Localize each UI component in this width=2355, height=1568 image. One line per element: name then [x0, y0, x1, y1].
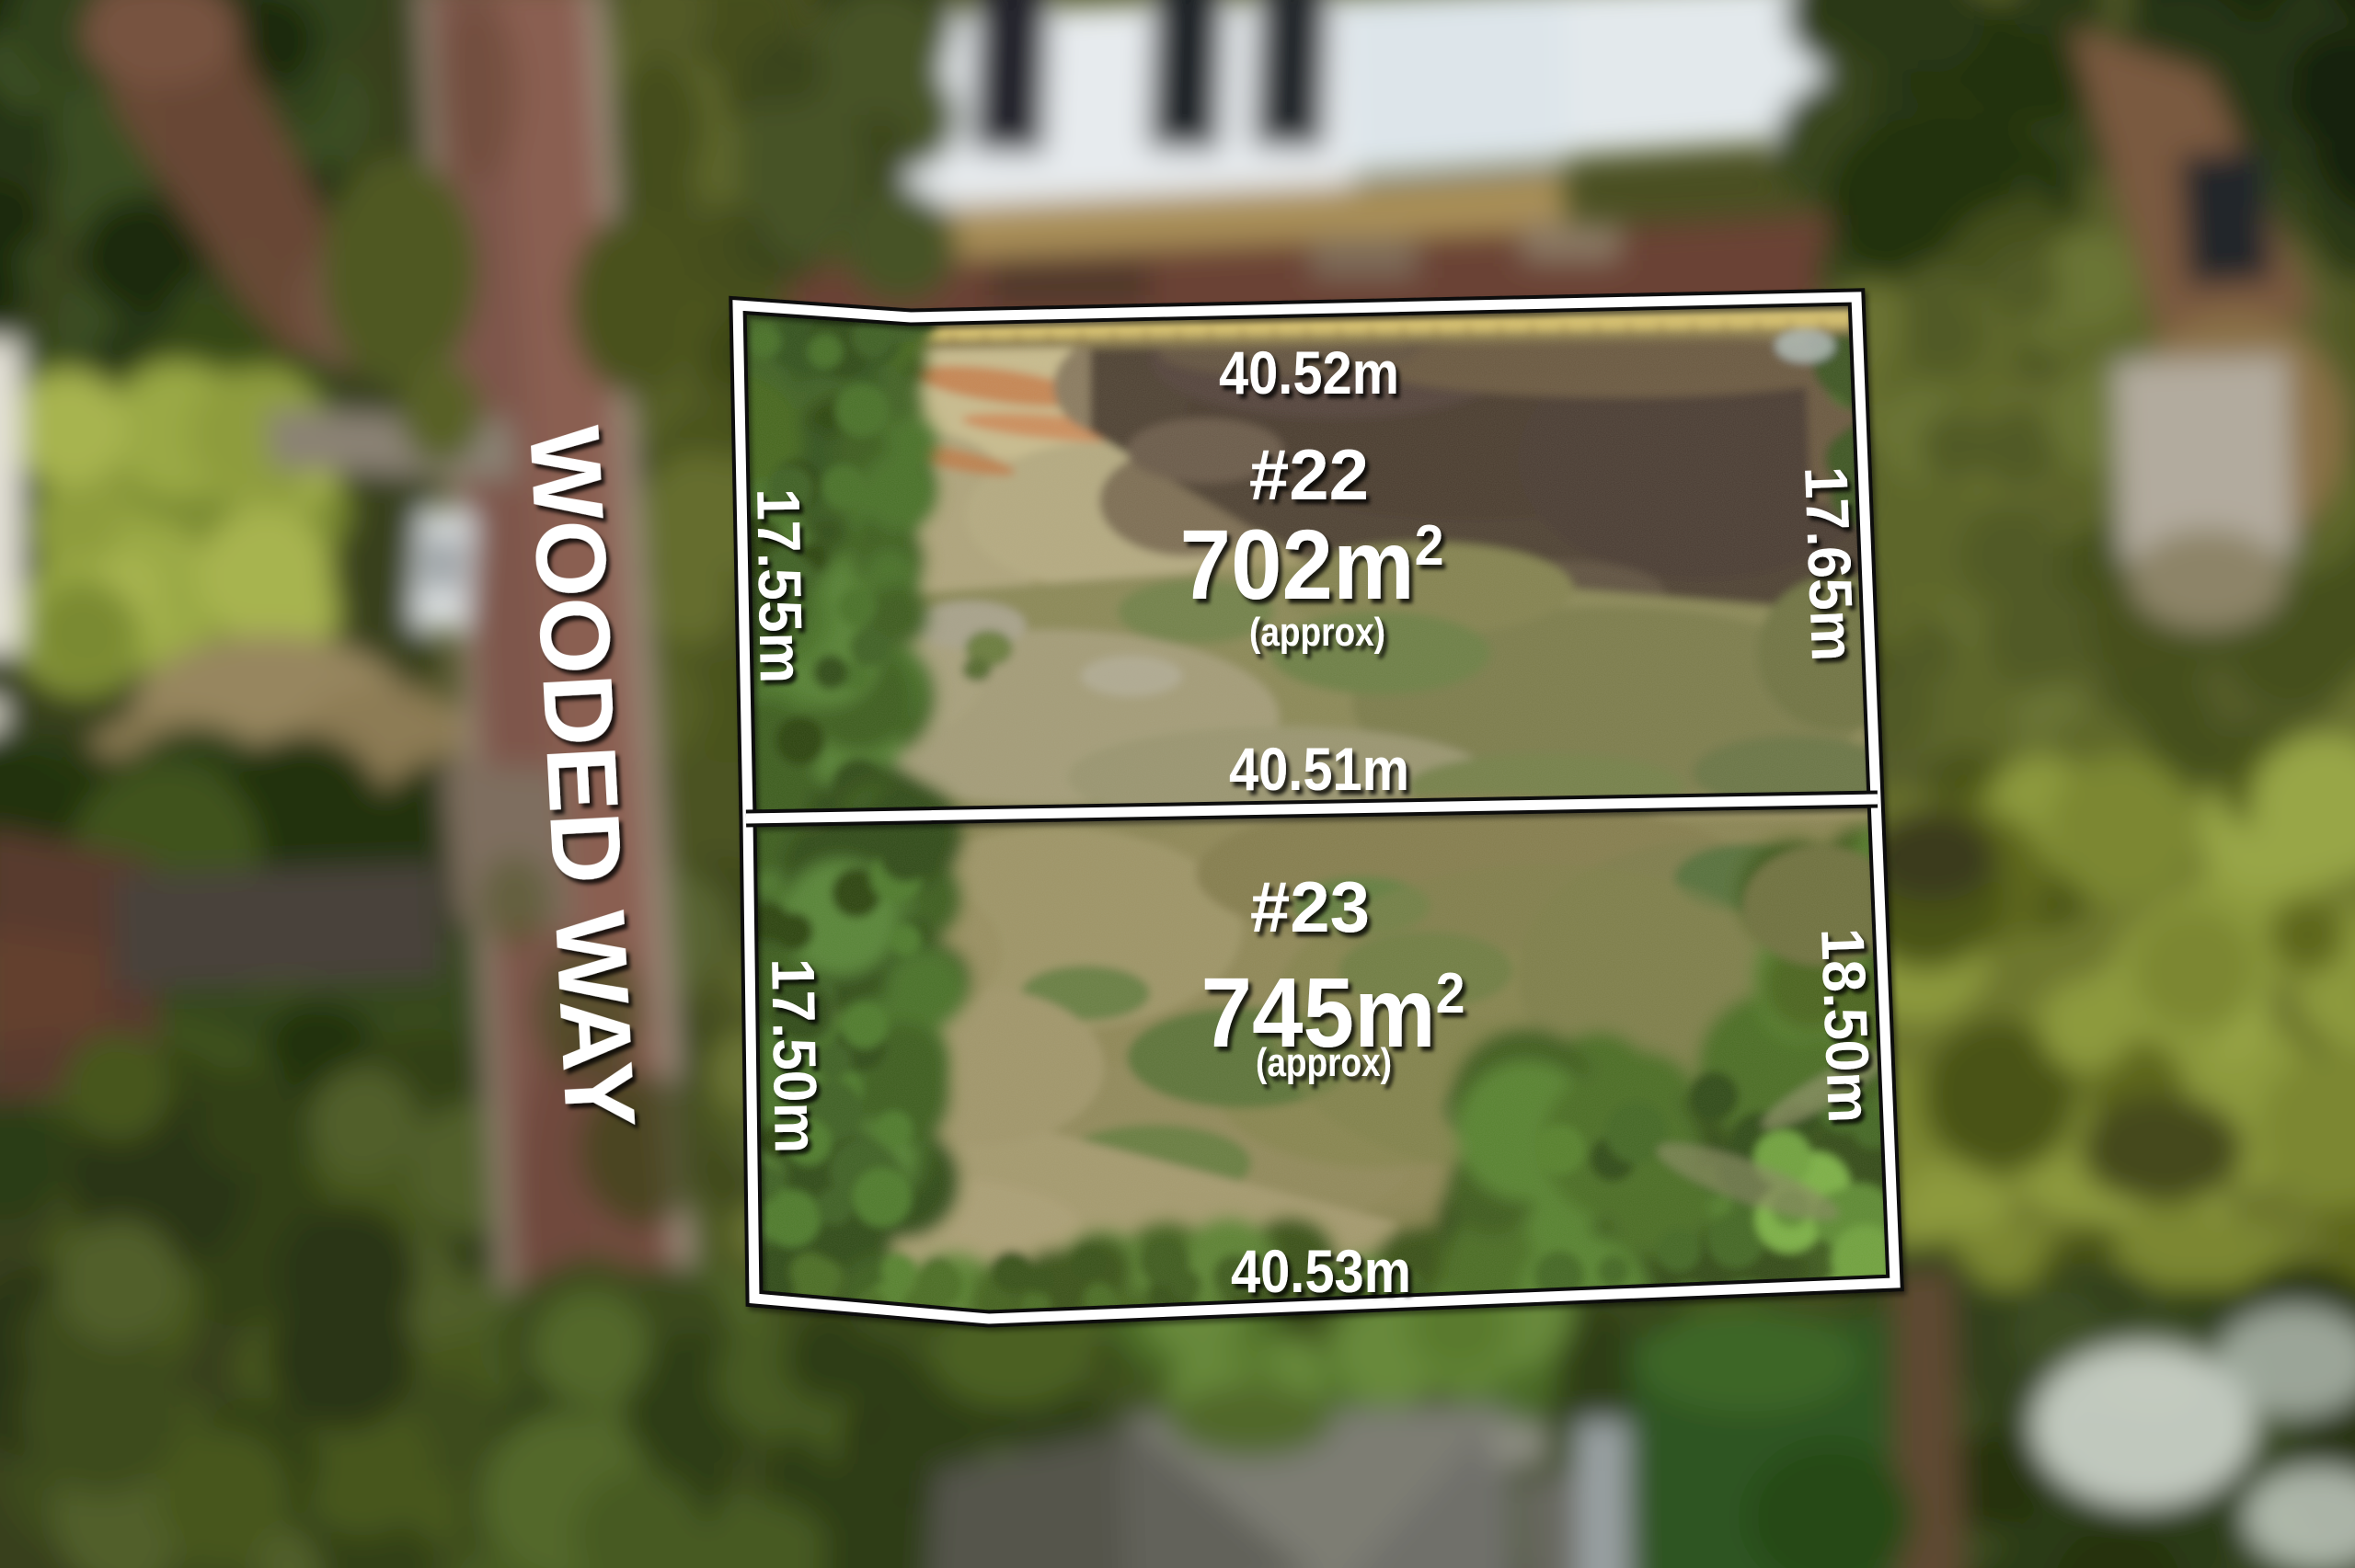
svg-text:#22: #22	[1249, 434, 1369, 515]
svg-text:40.51m: 40.51m	[1229, 735, 1409, 803]
svg-text:17.55m: 17.55m	[744, 487, 816, 683]
svg-text:40.53m: 40.53m	[1231, 1237, 1411, 1305]
svg-text:702m2: 702m2	[1180, 509, 1444, 620]
svg-text:(approx): (approx)	[1249, 610, 1385, 655]
svg-text:40.52m: 40.52m	[1219, 338, 1399, 406]
svg-text:17.50m: 17.50m	[759, 957, 831, 1153]
svg-text:17.65m: 17.65m	[1792, 465, 1867, 663]
svg-text:(approx): (approx)	[1256, 1040, 1392, 1085]
svg-text:18.50m: 18.50m	[1809, 927, 1884, 1125]
svg-text:#23: #23	[1250, 866, 1370, 947]
